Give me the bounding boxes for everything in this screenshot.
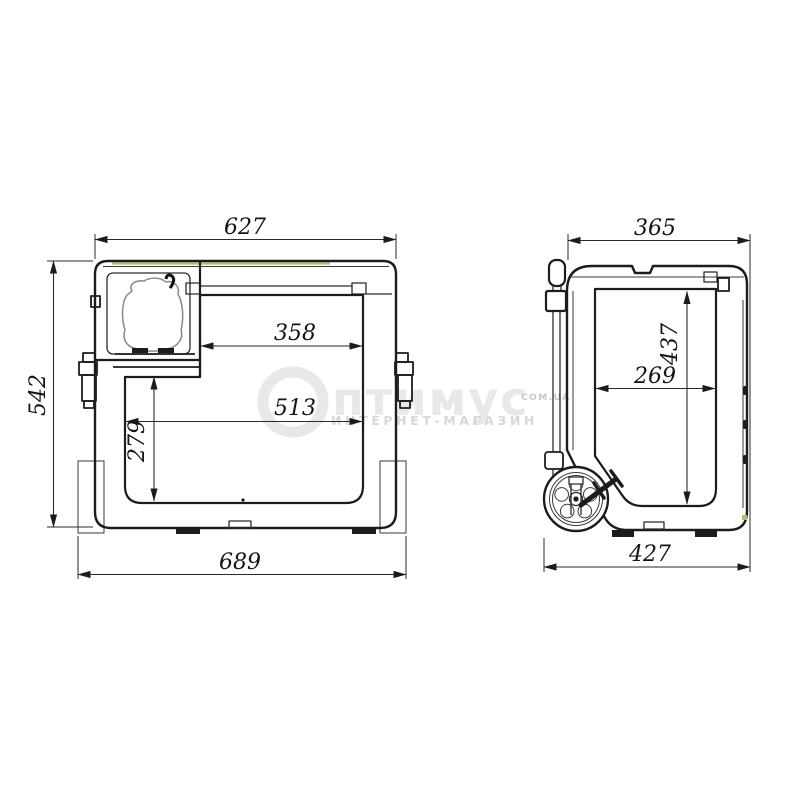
technical-drawing: птимус COM.UA ИНТЕРНЕТ-МАГАЗИН: [0, 0, 800, 800]
drawing-canvas: птимус COM.UA ИНТЕРНЕТ-МАГАЗИН: [0, 0, 800, 800]
dim-side-top-depth: 365: [634, 216, 676, 241]
handle-grip: [549, 260, 565, 286]
handle-lower-bracket: [545, 452, 563, 469]
front-foot-right: [352, 528, 376, 534]
corner-gasket-mark: [742, 515, 747, 520]
compressor-outline: [123, 278, 183, 351]
wall-bumper-2: [743, 420, 747, 429]
wheel: [544, 467, 608, 531]
compressor-foot-left: [132, 348, 148, 353]
dim-front-top-width: 627: [224, 215, 266, 240]
front-foot-left: [176, 528, 200, 534]
dim-front-upper-inner: 358: [274, 321, 316, 346]
handle-upper-block: [546, 291, 566, 311]
drain-dot: [241, 498, 244, 501]
side-foot-left: [612, 530, 634, 537]
dim-front-lower-inner-height: 279: [125, 420, 150, 463]
dim-side-inner-height: 437: [658, 323, 683, 366]
dim-front-inner-width: 513: [274, 396, 316, 421]
dim-front-base-width: 689: [219, 550, 261, 575]
wheel-axle-center: [573, 496, 578, 501]
wall-bumper-3: [743, 455, 747, 464]
dim-side-base-depth: 427: [628, 542, 671, 567]
wall-bumper-1: [743, 386, 747, 395]
watermark-domain-label: COM.UA: [521, 393, 571, 403]
dim-front-height: 542: [26, 374, 51, 416]
dim-side-inner-depth: 269: [633, 364, 676, 389]
compressor-foot-right: [158, 348, 174, 353]
axle-clevis-cap: [569, 477, 583, 484]
side-foot-right: [695, 530, 717, 537]
